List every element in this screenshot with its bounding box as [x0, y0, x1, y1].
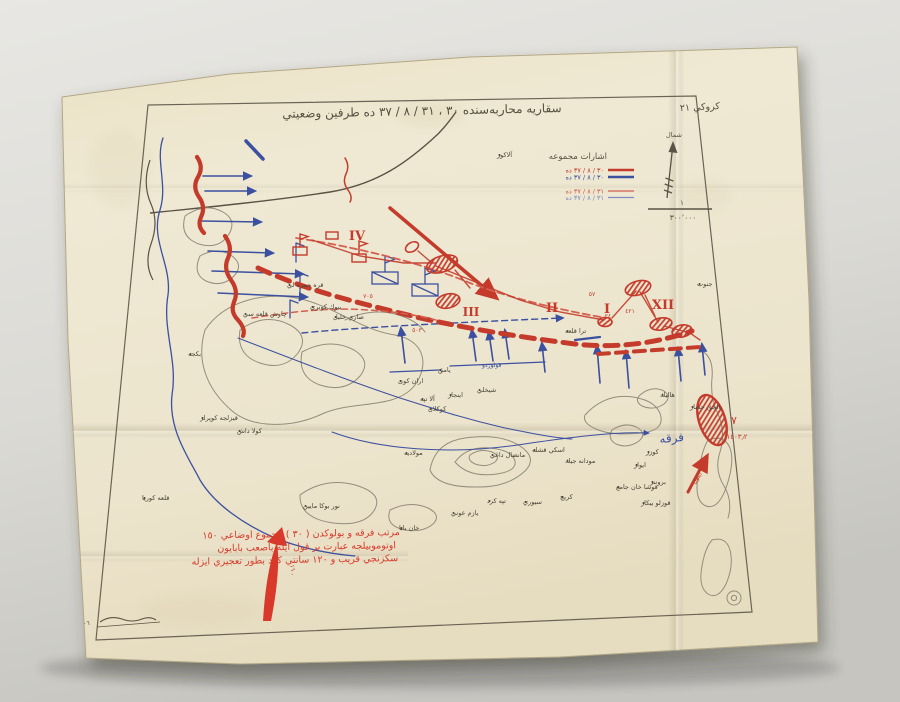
red-number: ٤٢١	[625, 308, 635, 315]
compass-label: شمال	[666, 131, 682, 139]
sheet-label: كروكي ٢١	[680, 101, 721, 114]
red-number: ٥٧	[589, 291, 596, 298]
scale-numerator: ١	[680, 199, 684, 207]
place-label: كريچ	[560, 493, 574, 501]
place-label: يازم عوني	[451, 509, 479, 517]
place-label: مودانه جيك	[565, 457, 595, 465]
red-number: ٧٠٥	[363, 293, 373, 300]
roman-numeral: IV	[349, 229, 366, 244]
place-label: صاري خليل	[333, 313, 364, 321]
corps-label: قولوردو	[481, 362, 501, 369]
place-label: مولاديه	[404, 449, 423, 457]
place-label: تپه كرد	[487, 497, 506, 505]
place-label: شيخلي	[477, 386, 496, 394]
place-label: اران كوى	[398, 377, 423, 385]
place-label: بروننر	[649, 478, 666, 486]
place-label: كولا داش	[237, 427, 263, 435]
legend-label: ٣١ / ٨ / ٣٧ ده	[566, 194, 605, 202]
photo-of-map: سقاريه محاربه‌سنده ٣٠ ، ٣١ / ٨ / ٣٧ ده ط…	[0, 0, 900, 702]
place-label: قوزلو بيكار	[640, 499, 671, 507]
red-number: ٥٠٣	[412, 327, 422, 334]
place-label: كوزر	[645, 448, 660, 456]
place-label: چاوش قلعه سي	[243, 310, 287, 318]
paper-sheet	[62, 47, 818, 664]
place-label: مانضال داغي	[490, 451, 525, 459]
place-label: اينجاز	[447, 391, 463, 399]
place-label: هاليك	[660, 391, 675, 399]
place-label: بيوك كوپري	[310, 303, 342, 311]
place-label: جنوب	[697, 280, 712, 288]
place-label: بكجه	[188, 350, 201, 358]
place-label: قلعه كوريا	[142, 494, 169, 502]
roman-numeral: III	[463, 305, 480, 319]
place-label: سيوري	[523, 498, 542, 506]
scale-denominator: ٣٠٠٬٠٠٠	[670, 213, 697, 222]
red-number: ٧	[731, 414, 737, 427]
place-label: نور بوكا مايين	[303, 502, 340, 510]
red-number: ١٤٠٣٫٢	[726, 433, 747, 441]
place-label: كوكلان	[428, 405, 447, 413]
place-label: ترا قلعه	[565, 327, 586, 335]
roman-numeral: XII	[652, 298, 674, 313]
place-label: بالجق حصار	[689, 403, 722, 411]
place-label: ايواز	[633, 461, 646, 469]
place-label: اسكي قشله	[532, 446, 565, 454]
place-label: آلاكوز	[496, 150, 513, 159]
legend-title: اشارات مجموعه	[549, 152, 607, 162]
place-label: يامق	[438, 366, 451, 374]
roman-numeral: II	[546, 301, 558, 316]
place-label: قيزلجه كوپرلر	[199, 414, 238, 422]
place-label: قره حمزه لي	[287, 281, 323, 289]
red-number: ٢٤	[605, 313, 611, 320]
place-label: آلا تپه	[420, 394, 436, 403]
legend-label: ٣٠ / ٨ / ٣٧ ده	[566, 174, 605, 182]
note-red: مرتب فرقه و بولوكدن ( ٣٠ ) مجموع اوضاعي …	[191, 527, 400, 568]
place-label: خان بابا	[399, 524, 419, 532]
